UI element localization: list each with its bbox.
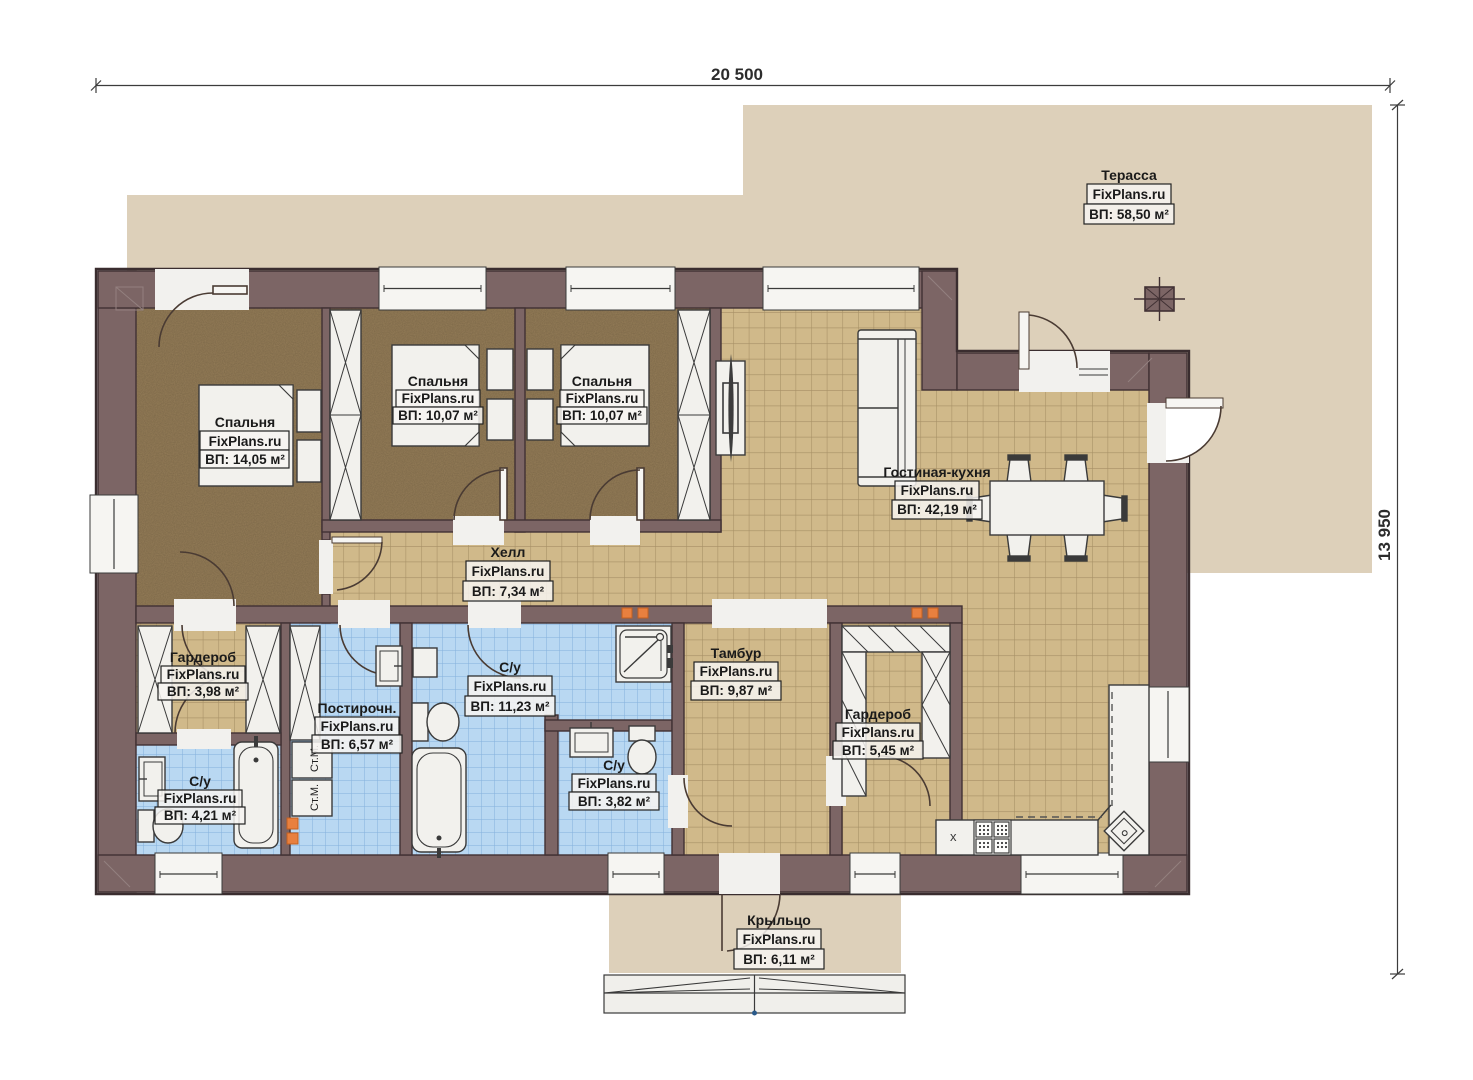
svg-text:FixPlans.ru: FixPlans.ru: [209, 434, 282, 449]
svg-text:x: x: [950, 829, 957, 844]
svg-text:FixPlans.ru: FixPlans.ru: [700, 664, 773, 679]
svg-text:ВП: 3,82 м²: ВП: 3,82 м²: [578, 794, 651, 809]
svg-text:ВП: 6,11 м²: ВП: 6,11 м²: [743, 952, 815, 967]
svg-text:Крыльцо: Крыльцо: [747, 912, 811, 928]
svg-text:FixPlans.ru: FixPlans.ru: [743, 932, 816, 947]
svg-text:ВП: 10,07 м²: ВП: 10,07 м²: [398, 408, 478, 423]
svg-text:ВП: 7,34 м²: ВП: 7,34 м²: [472, 584, 545, 599]
svg-text:Спальня: Спальня: [408, 373, 468, 389]
svg-text:FixPlans.ru: FixPlans.ru: [164, 791, 237, 806]
svg-text:13 950: 13 950: [1375, 509, 1394, 561]
svg-text:С/у: С/у: [603, 757, 625, 773]
svg-text:ВП: 4,21 м²: ВП: 4,21 м²: [164, 808, 237, 823]
svg-text:Гардероб: Гардероб: [170, 649, 237, 665]
svg-text:Спальня: Спальня: [572, 373, 632, 389]
svg-text:FixPlans.ru: FixPlans.ru: [402, 391, 475, 406]
svg-text:ВП: 9,87 м²: ВП: 9,87 м²: [700, 683, 773, 698]
svg-text:ВП: 3,98 м²: ВП: 3,98 м²: [167, 684, 240, 699]
svg-text:Спальня: Спальня: [215, 414, 275, 430]
svg-text:Хелл: Хелл: [491, 544, 526, 560]
svg-text:ВП: 5,45 м²: ВП: 5,45 м²: [842, 743, 915, 758]
svg-text:Тамбур: Тамбур: [711, 645, 762, 661]
svg-text:Гостиная-кухня: Гостиная-кухня: [883, 464, 990, 480]
svg-text:ВП: 6,57 м²: ВП: 6,57 м²: [321, 737, 394, 752]
svg-text:FixPlans.ru: FixPlans.ru: [472, 564, 545, 579]
svg-text:FixPlans.ru: FixPlans.ru: [566, 391, 639, 406]
svg-text:Ст.М.: Ст.М.: [309, 784, 321, 811]
svg-text:ВП: 58,50 м²: ВП: 58,50 м²: [1089, 207, 1169, 222]
svg-text:С/у: С/у: [189, 773, 211, 789]
svg-text:Постирочн.: Постирочн.: [318, 700, 397, 716]
svg-text:ВП: 42,19 м²: ВП: 42,19 м²: [897, 502, 977, 517]
svg-text:FixPlans.ru: FixPlans.ru: [167, 667, 240, 682]
svg-text:ВП: 14,05 м²: ВП: 14,05 м²: [205, 452, 285, 467]
svg-text:FixPlans.ru: FixPlans.ru: [842, 725, 915, 740]
svg-text:ВП: 11,23 м²: ВП: 11,23 м²: [471, 699, 550, 714]
svg-text:Гардероб: Гардероб: [845, 706, 912, 722]
svg-text:FixPlans.ru: FixPlans.ru: [474, 679, 547, 694]
svg-text:С/у: С/у: [499, 659, 521, 675]
svg-text:20 500: 20 500: [711, 65, 763, 84]
svg-text:FixPlans.ru: FixPlans.ru: [1093, 187, 1166, 202]
svg-text:ВП: 10,07 м²: ВП: 10,07 м²: [562, 408, 642, 423]
svg-text:FixPlans.ru: FixPlans.ru: [321, 719, 394, 734]
svg-text:FixPlans.ru: FixPlans.ru: [578, 776, 651, 791]
svg-text:FixPlans.ru: FixPlans.ru: [901, 483, 974, 498]
svg-text:Терасса: Терасса: [1101, 167, 1157, 183]
